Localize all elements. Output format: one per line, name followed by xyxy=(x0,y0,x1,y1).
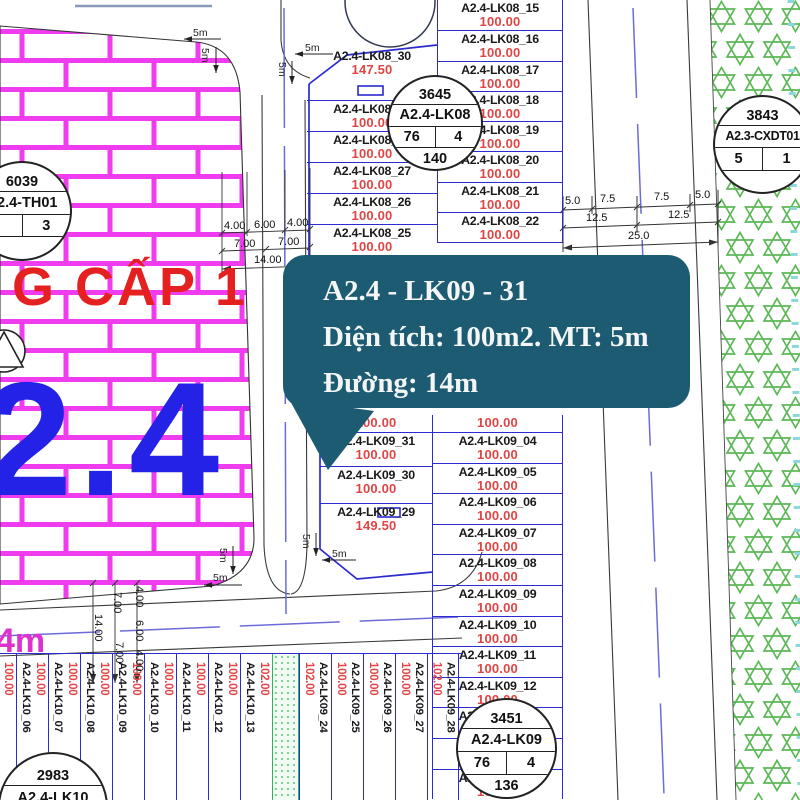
tooltip-road-width: Đường: 14m xyxy=(323,360,680,406)
tooltip-plot-id: A2.4 - LK09 - 31 xyxy=(323,268,680,314)
plot-info-tooltip: A2.4 - LK09 - 31 Diện tích: 100m2. MT: 5… xyxy=(283,255,690,408)
tooltip-area-frontage: Diện tích: 100m2. MT: 5m xyxy=(323,314,680,360)
cadastral-map-canvas[interactable]: A2.4-LK08_30 147.50 A2.4-LK08_29 100.00 … xyxy=(0,0,800,800)
